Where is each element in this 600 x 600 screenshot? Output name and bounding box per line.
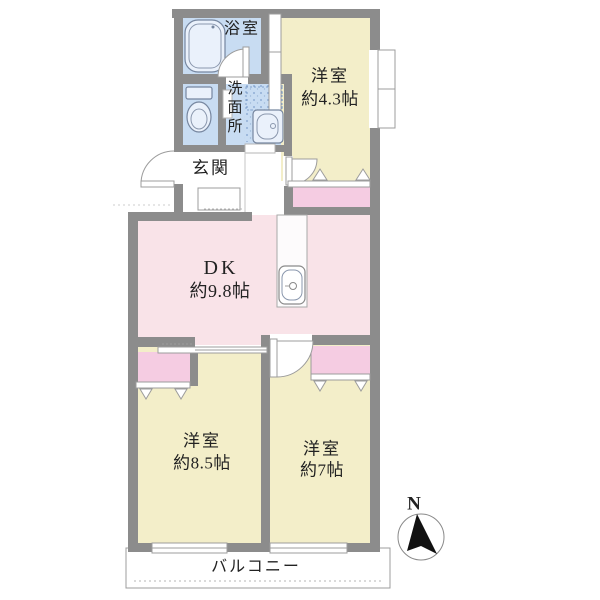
room-mid-door-leaf [270, 339, 277, 377]
shoe-cabinet-icon [198, 188, 240, 210]
pipe-space-box [269, 14, 281, 120]
bathtub-drain [212, 26, 215, 29]
washroom-label-char-3: 所 [227, 118, 242, 135]
room-mid-label: 洋室 [303, 440, 341, 459]
balcony-label: バルコニー [211, 559, 301, 576]
room-small-label: 洋室 [311, 67, 349, 86]
dk-label: DK [204, 257, 239, 279]
washroom-entry-opening [245, 144, 275, 153]
toilet-tank-icon [186, 87, 212, 99]
dk-size: 約9.8帖 [190, 281, 251, 301]
room-mid-size: 約7帖 [300, 461, 344, 480]
toilet-bowl-icon [187, 102, 211, 132]
closet-small-doors [288, 181, 370, 187]
closet-large-doors [136, 382, 190, 388]
bath-door-leaf [243, 47, 249, 77]
wall-entrance-bottom [128, 212, 252, 221]
room-large-label: 洋室 [183, 432, 221, 451]
wall-bath-bottom [174, 74, 220, 84]
kitchen-faucet-icon [290, 283, 297, 290]
washroom-label-char-1: 洗 [227, 80, 242, 97]
closet-mid-doors [311, 374, 370, 380]
room-dining-kitchen [138, 215, 370, 345]
washroom-label-char-2: 面 [227, 100, 242, 116]
closet-western-small [288, 186, 370, 207]
wall-room-mid-top [310, 335, 380, 345]
floor-plan: 浴室 洗 面 所 玄関 洋室 約4.3帖 DK 約9.8帖 洋室 約8.5帖 洋… [0, 0, 600, 600]
closet-western-large [136, 352, 190, 384]
compass-north-label: N [407, 494, 421, 515]
entrance-door-leaf [141, 181, 174, 187]
closet-western-mid [311, 346, 370, 376]
entrance-label: 玄関 [192, 159, 230, 178]
wall-under-closet [284, 207, 380, 215]
wall-dk-bottom-left [128, 337, 195, 347]
room-small-size: 約4.3帖 [301, 90, 359, 109]
wall-middle-rooms [261, 335, 270, 552]
room-large-size: 約8.5帖 [173, 454, 231, 473]
bath-label: 浴室 [224, 20, 260, 38]
